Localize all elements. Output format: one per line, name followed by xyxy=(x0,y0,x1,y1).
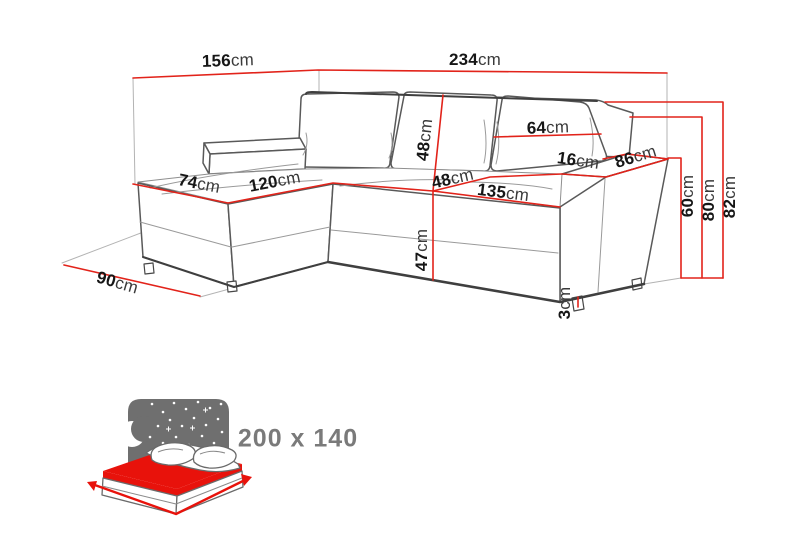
dim-label-seat-height: 47cm xyxy=(412,229,431,271)
floor-guide-right xyxy=(644,278,681,284)
dim-label-leg-height: 3cm xyxy=(555,287,574,320)
dim-line-top-widths xyxy=(133,70,667,78)
back-cushion-middle xyxy=(391,92,497,171)
dim-label-chaise-side-width: 156cm xyxy=(202,51,255,72)
dim-label-chaise-footprint-depth: 90cm xyxy=(94,268,140,298)
bed-icon xyxy=(87,399,252,514)
dim-label-cushion-width: 64cm xyxy=(526,118,569,138)
dim-label-backrest-height: 80cm xyxy=(699,179,718,221)
floor-guide-back xyxy=(62,231,146,263)
bed-size-label: 200 x 140 xyxy=(238,425,358,453)
sofa-dimension-diagram: 156cm 234cm 48cm 64cm 16cm 86cm 74cm 120… xyxy=(0,0,800,533)
back-cushion-left xyxy=(298,92,399,168)
dim-label-total-width: 234cm xyxy=(449,50,501,69)
sofa-leg xyxy=(144,263,154,274)
wall-guide-left xyxy=(133,78,135,184)
dim-label-total-height: 82cm xyxy=(720,176,739,218)
dim-label-armrest-height: 60cm xyxy=(678,175,697,217)
moon-icon-mask xyxy=(131,416,157,442)
right-armrest-body xyxy=(560,159,668,302)
diagram-canvas: 156cm 234cm 48cm 64cm 16cm 86cm 74cm 120… xyxy=(0,0,800,533)
